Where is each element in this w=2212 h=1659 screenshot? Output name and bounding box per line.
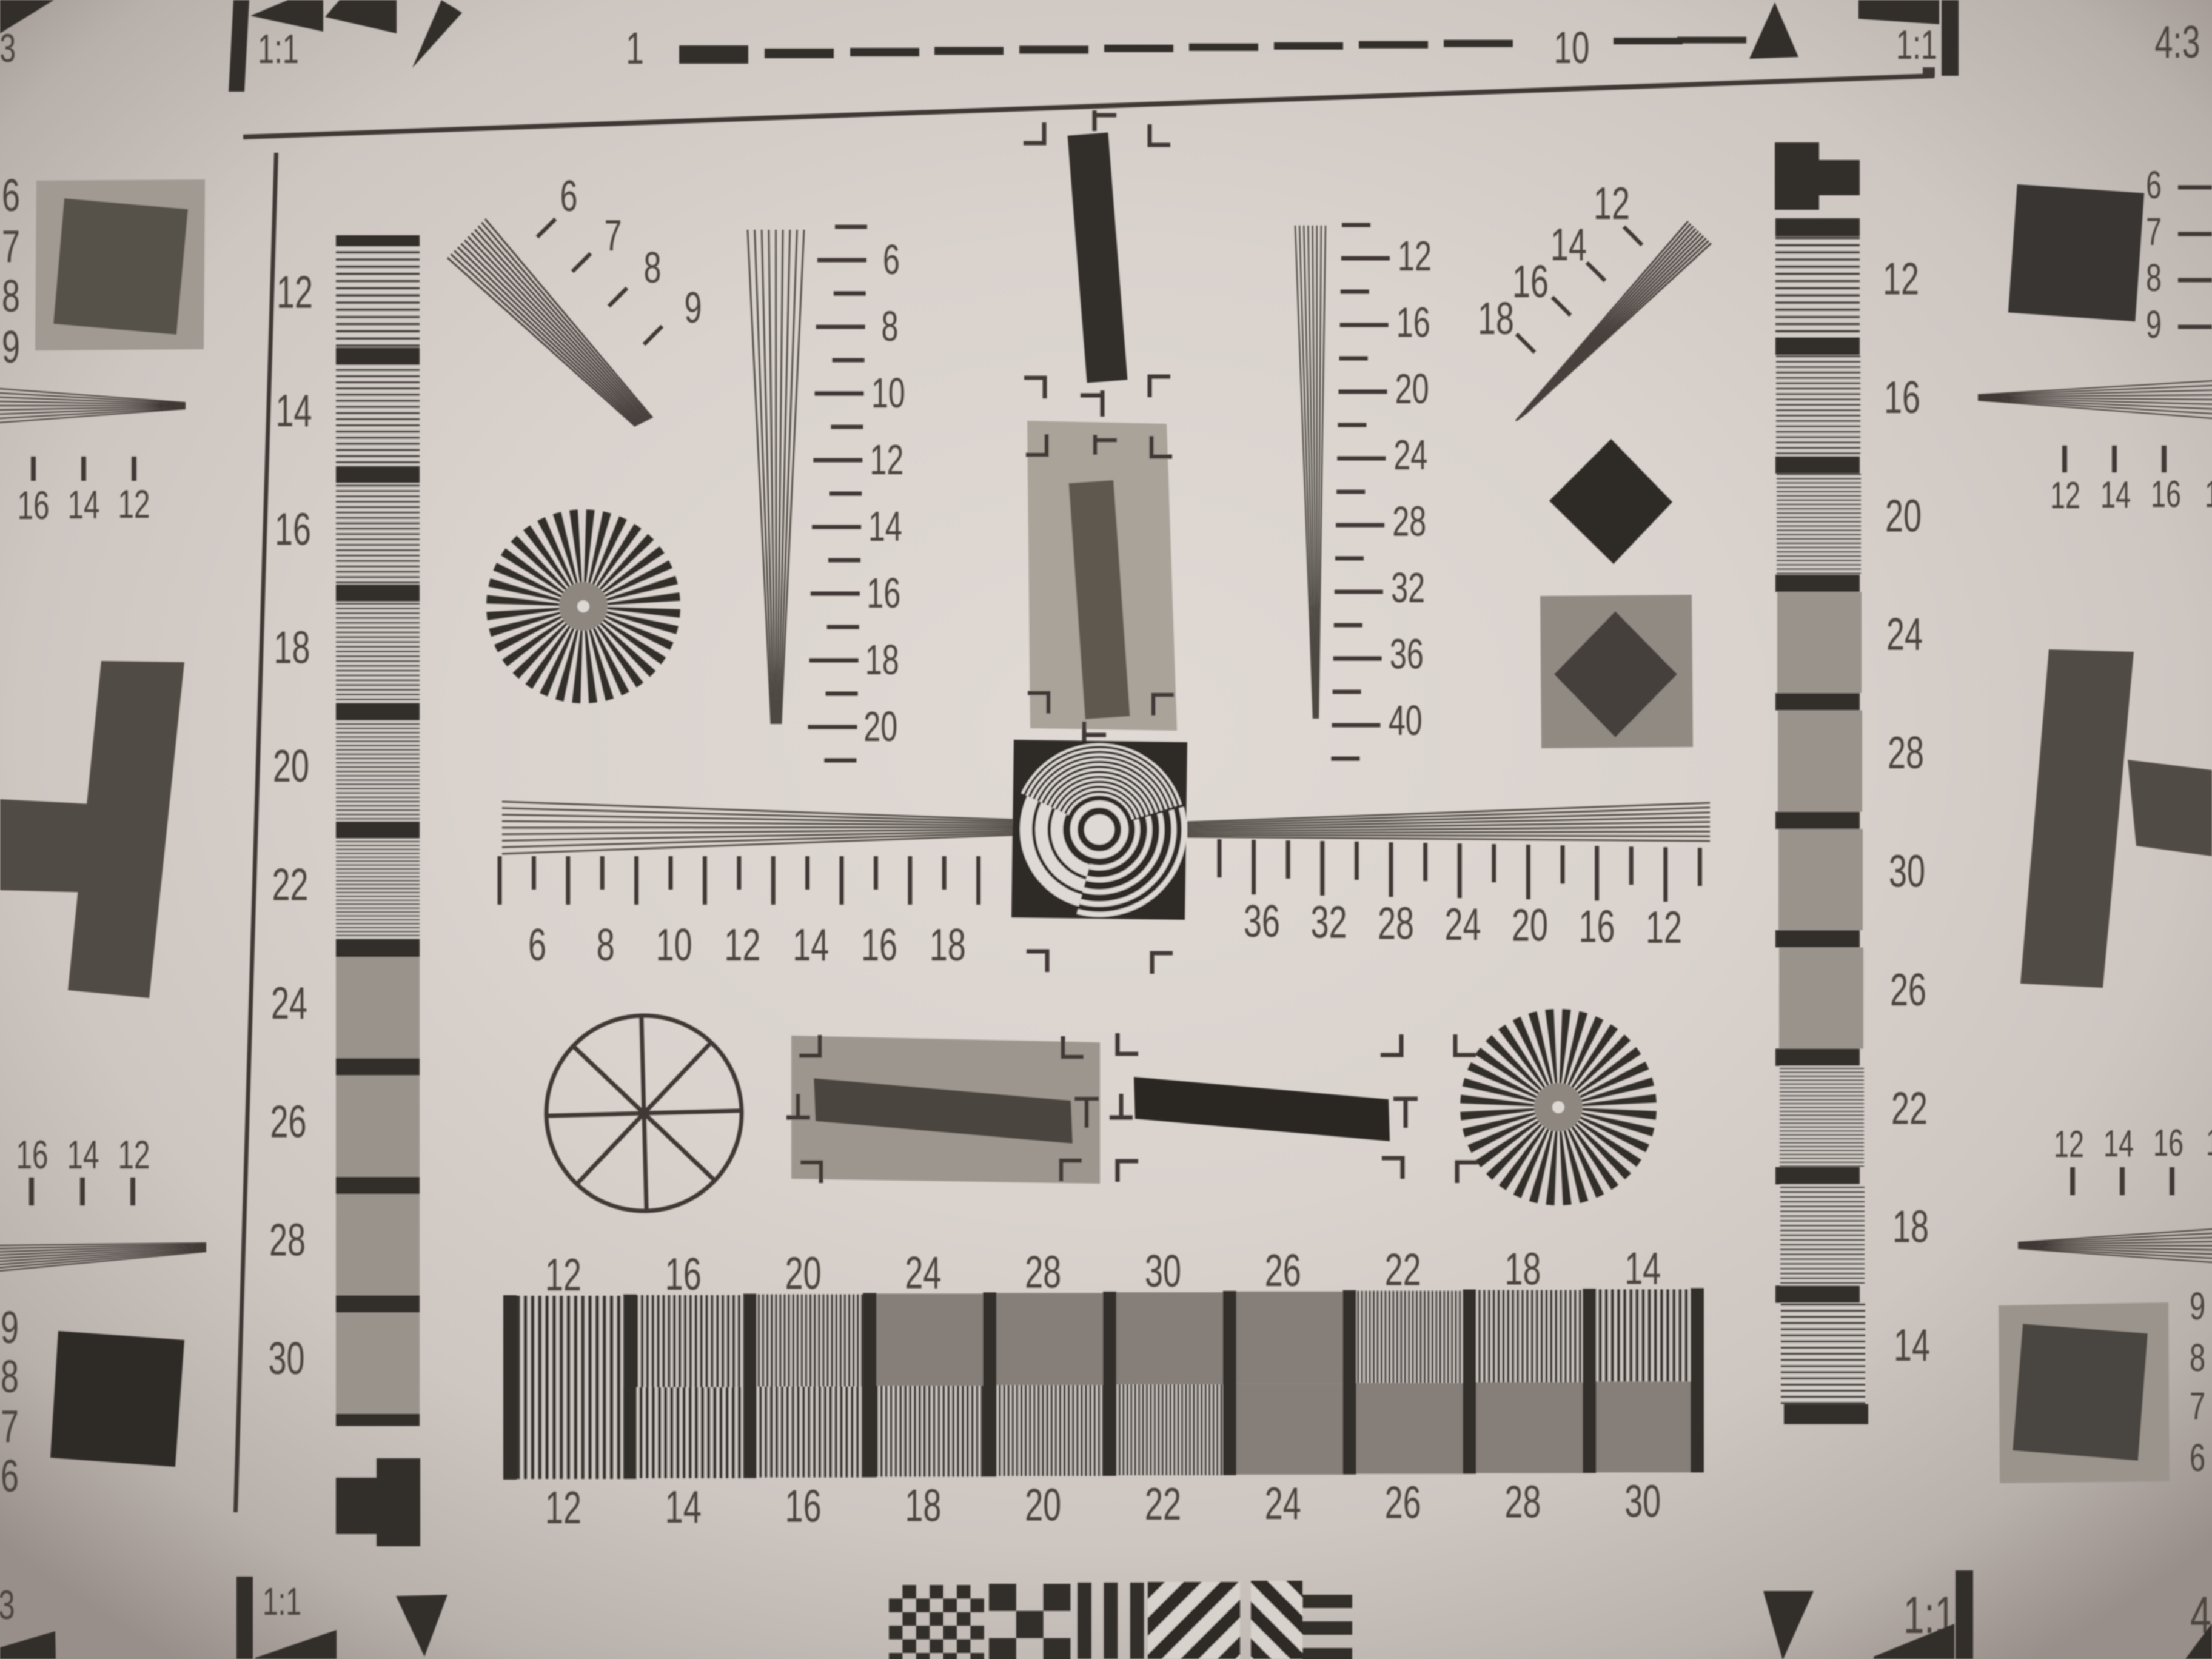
svg-text:6: 6 <box>1 1450 19 1501</box>
svg-text:8: 8 <box>2146 256 2162 300</box>
svg-text:14: 14 <box>276 385 312 436</box>
svg-text:7: 7 <box>605 212 622 260</box>
svg-text:7: 7 <box>2190 1384 2205 1428</box>
svg-text:32: 32 <box>1311 897 1347 948</box>
svg-text:16: 16 <box>861 919 897 970</box>
svg-text:28: 28 <box>1504 1476 1541 1527</box>
svg-text:10: 10 <box>1554 22 1590 73</box>
svg-text:16: 16 <box>2153 1122 2184 1164</box>
svg-text:14: 14 <box>1894 1319 1930 1370</box>
svg-text:16: 16 <box>665 1248 702 1299</box>
svg-text:24: 24 <box>1445 899 1481 950</box>
svg-text:28: 28 <box>1378 897 1414 948</box>
svg-text:1: 1 <box>2206 1122 2212 1164</box>
svg-text:12: 12 <box>2050 475 2080 517</box>
svg-text:9: 9 <box>1 1302 19 1353</box>
svg-text::3: :3 <box>0 1582 15 1628</box>
svg-text:14: 14 <box>67 1132 99 1177</box>
svg-text:30: 30 <box>1889 846 1925 897</box>
svg-text:9: 9 <box>2146 303 2162 346</box>
svg-text:8: 8 <box>1 1351 19 1402</box>
svg-text:18: 18 <box>865 636 899 683</box>
svg-text:9: 9 <box>685 284 702 332</box>
svg-text:18: 18 <box>930 919 966 970</box>
svg-text:14: 14 <box>1624 1242 1661 1293</box>
svg-text:24: 24 <box>1886 609 1923 660</box>
svg-text:22: 22 <box>1145 1478 1181 1529</box>
svg-text:10: 10 <box>656 919 692 970</box>
svg-text:30: 30 <box>269 1333 305 1384</box>
svg-text:28: 28 <box>269 1215 306 1265</box>
svg-text:20: 20 <box>785 1248 822 1299</box>
svg-text:12: 12 <box>118 481 150 526</box>
svg-text:14: 14 <box>1550 219 1587 270</box>
svg-text:26: 26 <box>1385 1477 1421 1528</box>
svg-text:24: 24 <box>1265 1478 1301 1529</box>
svg-text:28: 28 <box>1888 727 1924 778</box>
svg-text:24: 24 <box>905 1247 941 1298</box>
svg-text:30: 30 <box>1624 1475 1661 1526</box>
svg-text::3: :3 <box>0 25 16 70</box>
svg-text:16: 16 <box>1884 372 1920 423</box>
svg-text:12: 12 <box>545 1249 581 1300</box>
svg-text:16: 16 <box>1512 256 1549 307</box>
svg-text:7: 7 <box>2146 210 2162 253</box>
svg-text:18: 18 <box>1478 293 1514 344</box>
svg-text:12: 12 <box>2054 1124 2084 1165</box>
svg-text:16: 16 <box>1579 900 1615 951</box>
svg-text:12: 12 <box>1398 232 1432 280</box>
svg-text:20: 20 <box>1885 490 1922 541</box>
svg-text:10: 10 <box>871 369 905 417</box>
svg-text:36: 36 <box>1244 896 1280 947</box>
svg-text:24: 24 <box>1393 431 1427 478</box>
svg-text:12: 12 <box>724 919 760 970</box>
svg-text:12: 12 <box>1646 902 1682 953</box>
svg-text:22: 22 <box>1891 1082 1928 1133</box>
svg-text:30: 30 <box>1145 1245 1181 1296</box>
svg-text:32: 32 <box>1391 564 1425 611</box>
svg-text:1:1: 1:1 <box>258 26 299 72</box>
svg-text:22: 22 <box>272 859 309 910</box>
svg-text:16: 16 <box>18 483 50 528</box>
svg-text:16: 16 <box>2151 474 2181 515</box>
svg-text:4:3: 4:3 <box>2155 16 2200 67</box>
svg-text:1: 1 <box>2205 474 2212 515</box>
svg-text:20: 20 <box>1395 365 1429 412</box>
svg-text:8: 8 <box>2190 1336 2205 1379</box>
svg-text:14: 14 <box>793 919 829 970</box>
svg-text:24: 24 <box>271 977 307 1028</box>
svg-text:20: 20 <box>1512 900 1548 951</box>
svg-text:20: 20 <box>273 740 309 791</box>
svg-text:9: 9 <box>2190 1284 2205 1328</box>
svg-text:14: 14 <box>2100 474 2131 516</box>
svg-text:8: 8 <box>2 270 20 321</box>
svg-text:7: 7 <box>1 1401 19 1452</box>
svg-text:14: 14 <box>665 1481 702 1532</box>
svg-text:26: 26 <box>270 1096 307 1147</box>
svg-text:12: 12 <box>1883 253 1919 304</box>
svg-text:6: 6 <box>2146 163 2162 207</box>
svg-text:12: 12 <box>1594 178 1630 229</box>
svg-text:7: 7 <box>2 221 20 272</box>
svg-text:8: 8 <box>597 919 615 970</box>
svg-text:9: 9 <box>2 321 20 372</box>
svg-text:22: 22 <box>1385 1244 1421 1295</box>
svg-text:18: 18 <box>1504 1244 1541 1295</box>
svg-text:14: 14 <box>2103 1123 2134 1165</box>
svg-text:16: 16 <box>16 1132 49 1177</box>
svg-text:1: 1 <box>626 23 644 73</box>
svg-text:6: 6 <box>560 172 578 221</box>
svg-text:20: 20 <box>863 703 897 750</box>
svg-text:12: 12 <box>545 1482 581 1533</box>
svg-text:8: 8 <box>882 303 899 350</box>
svg-text:26: 26 <box>1890 964 1926 1015</box>
svg-text:14: 14 <box>68 482 100 527</box>
svg-text:28: 28 <box>1392 498 1426 545</box>
svg-text:6: 6 <box>883 236 900 283</box>
svg-text:6: 6 <box>528 919 546 970</box>
svg-text:16: 16 <box>785 1481 822 1532</box>
svg-text:1:1: 1:1 <box>1896 22 1937 68</box>
svg-text:16: 16 <box>866 569 900 617</box>
svg-text:14: 14 <box>868 503 902 550</box>
svg-text:6: 6 <box>2 170 20 221</box>
svg-text:18: 18 <box>905 1480 941 1530</box>
svg-text:16: 16 <box>275 503 311 554</box>
svg-text:12: 12 <box>276 267 313 318</box>
svg-text:16: 16 <box>1396 298 1430 346</box>
svg-text:28: 28 <box>1025 1246 1061 1297</box>
svg-text:12: 12 <box>118 1132 150 1177</box>
svg-text:40: 40 <box>1389 697 1423 744</box>
svg-text:8: 8 <box>644 244 662 292</box>
svg-text:36: 36 <box>1390 630 1424 677</box>
svg-text:18: 18 <box>1892 1201 1929 1252</box>
svg-text:26: 26 <box>1265 1245 1301 1296</box>
svg-text:6: 6 <box>2190 1436 2205 1480</box>
svg-text:12: 12 <box>870 436 903 483</box>
svg-text:1:1: 1:1 <box>263 1580 301 1623</box>
svg-text:20: 20 <box>1025 1479 1061 1530</box>
svg-text:18: 18 <box>274 622 310 673</box>
